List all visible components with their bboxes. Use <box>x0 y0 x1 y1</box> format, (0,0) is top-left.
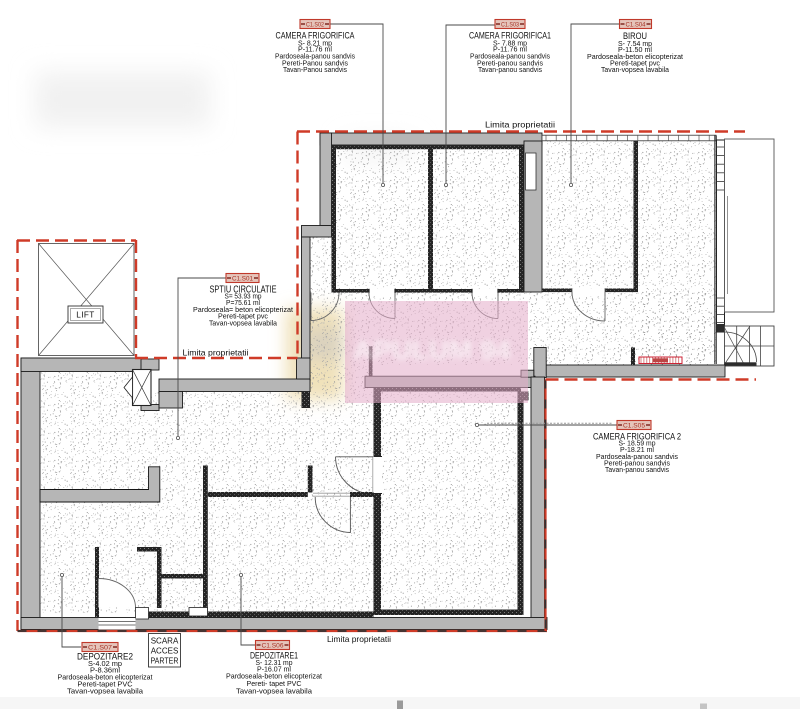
svg-text:Limita proprietatii: Limita proprietatii <box>485 121 555 130</box>
svg-text:Tavan-panou sandvis: Tavan-panou sandvis <box>478 65 542 74</box>
svg-text:C1.S01: C1.S01 <box>232 276 253 283</box>
svg-text:Tavan-vopsea lavabila: Tavan-vopsea lavabila <box>209 319 278 328</box>
svg-text:Tavan-vopsea lavabila: Tavan-vopsea lavabila <box>601 65 670 74</box>
svg-text:C1.S05: C1.S05 <box>623 423 645 430</box>
svg-text:C1.S02: C1.S02 <box>306 22 324 29</box>
svg-text:C1.S06: C1.S06 <box>262 643 284 650</box>
svg-text:LIFT: LIFT <box>76 311 94 320</box>
svg-text:Tavan-Panou sandvis: Tavan-Panou sandvis <box>283 65 347 74</box>
svg-text:APULUM 94: APULUM 94 <box>353 335 512 365</box>
svg-text:Tavan-panou sandvis: Tavan-panou sandvis <box>605 465 669 474</box>
svg-text:Tavan-vopsea lavabila: Tavan-vopsea lavabila <box>67 687 144 696</box>
svg-text:ACCES: ACCES <box>151 647 179 656</box>
svg-text:Limita proprietatii: Limita proprietatii <box>183 349 249 358</box>
svg-text:Tavan-vopsea lavabila: Tavan-vopsea lavabila <box>236 687 313 696</box>
svg-text:C1.S04: C1.S04 <box>626 22 646 29</box>
svg-text:C1.S03: C1.S03 <box>501 22 519 29</box>
svg-text:PARTER: PARTER <box>151 657 179 666</box>
svg-text:Limita proprietatii: Limita proprietatii <box>327 635 391 644</box>
svg-text:SCARA: SCARA <box>151 637 179 646</box>
svg-text:C1.S07: C1.S07 <box>88 645 112 652</box>
